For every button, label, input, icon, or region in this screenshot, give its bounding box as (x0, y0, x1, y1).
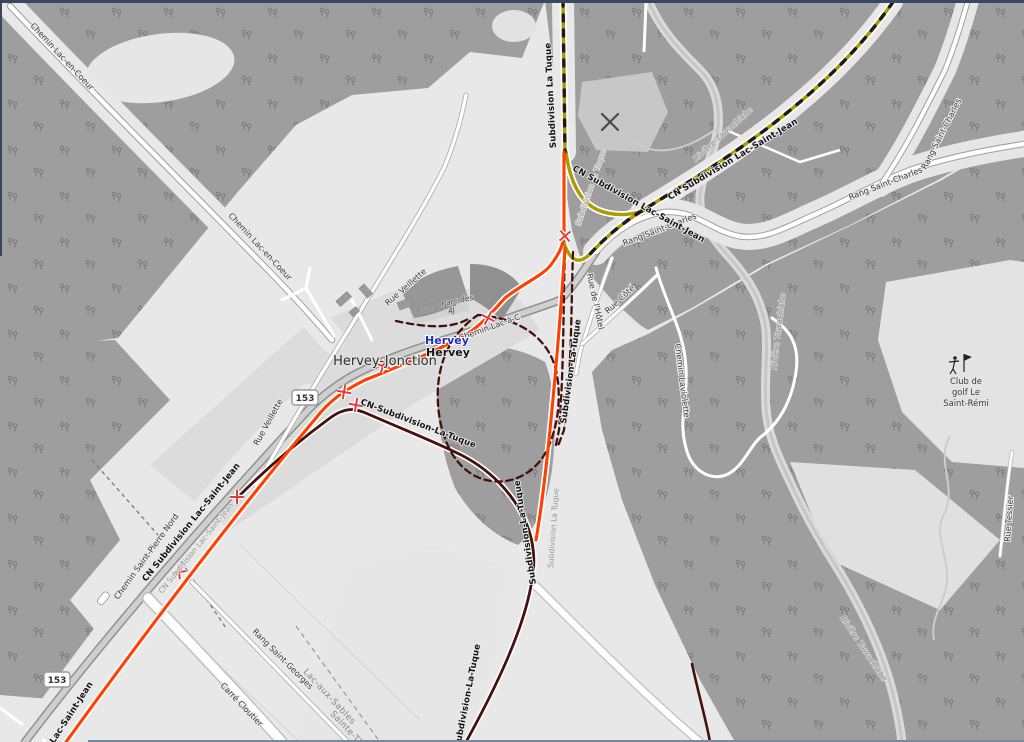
town-label-hervey-jonction: Hervey-Jonction (333, 354, 437, 369)
golf-label-line1: Club de (950, 376, 982, 386)
route-153-shield-2: 153 (44, 672, 70, 687)
village-label-hervey: Hervey (426, 346, 470, 359)
route-153-shield-label: 153 (296, 394, 315, 404)
golf-label-line2: golf Le (952, 387, 980, 397)
map-canvas[interactable]: 153 153 Chemin Lac-en-Coeur Chemin Lac-e… (0, 0, 1024, 742)
window-top-border (0, 0, 1024, 3)
route-153-shield-2-label: 153 (48, 676, 67, 686)
map-viewport[interactable]: 153 153 Chemin Lac-en-Coeur Chemin Lac-e… (0, 0, 1024, 742)
golf-label-line3: Saint-Rémi (943, 398, 988, 408)
window-left-border (0, 0, 2, 256)
route-153-shield: 153 (292, 390, 318, 405)
